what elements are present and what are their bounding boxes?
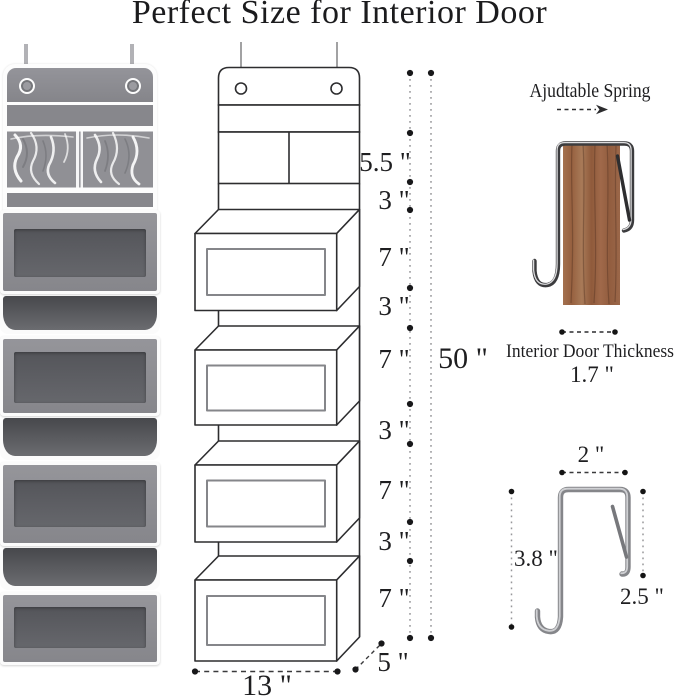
pocket-opening [0,548,160,590]
dim-label-section-3: 7 " [378,242,409,272]
pocket-window [14,480,146,527]
pocket-row [0,592,160,665]
dim-label-section-9: 7 " [378,583,409,613]
diagram-pocket [195,326,360,425]
fabric-band [7,193,153,207]
door-hook-panel: Ajudtable Spring Interior Door Thic [500,60,679,660]
pocket-opening [0,296,160,334]
door-thickness-label: Interior Door Thickness [506,341,674,362]
organizer-photo [0,0,164,697]
pocket-row [0,462,160,546]
pocket-window [14,607,146,648]
spring-label: Ajudtable Spring [530,80,651,102]
door-with-hook-illustration [534,143,632,335]
pocket-interior [3,548,157,586]
pocket-front [3,595,157,662]
dim-label-section-4: 3 " [378,291,409,321]
pocket-row [0,210,160,294]
measure-dots [407,70,434,641]
organizer-top-panel [3,64,157,211]
grommet-icon [236,83,247,94]
clear-pocket [7,129,153,190]
pocket-window [14,352,146,403]
dim-label-section-5: 7 " [378,344,409,374]
diagram-pocket [195,556,360,661]
pocket-interior [3,296,157,330]
hook-width-label: 2 " [578,442,605,467]
arrow-right-icon [557,105,608,114]
fabric-band [7,105,153,126]
grommet-icon [125,78,141,94]
pocket-row [0,336,160,416]
dim-label-section-1: 5.5 " [359,147,411,177]
diagram-pocket [195,441,360,542]
grommet-icon [331,83,342,94]
pocket-opening [0,418,160,460]
organizer-header [7,68,153,102]
pocket-front [3,339,157,413]
pocket-front [3,213,157,291]
dim-label-depth: 5 " [377,647,408,677]
product-dimension-infographic: Perfect Size for Interior Door [0,0,679,697]
diagram-pocket [195,210,360,311]
organizer-diagram: 5.5 " 3 " 7 " 3 " 7 " 3 " 7 " 3 " 7 " 50… [185,38,500,697]
dim-label-width: 13 " [242,669,292,697]
door-thickness-value: 1.7 " [570,362,614,387]
hook-dimension-diagram: 2 " 3.8 " 2.5 " [509,442,664,632]
hook-short-side-label: 2.5 " [620,584,664,609]
diagram-header [219,68,360,184]
dim-label-total-height: 50 " [438,342,488,375]
pocket-front [3,465,157,543]
hook-long-side-label: 3.8 " [514,546,558,571]
pocket-window [14,229,146,277]
dim-label-section-2: 3 " [378,185,409,215]
dim-label-section-7: 7 " [378,475,409,505]
dim-label-section-6: 3 " [378,415,409,445]
pocket-interior [3,418,157,456]
dim-label-section-8: 3 " [378,526,409,556]
clear-pocket-texture [7,129,153,190]
grommet-icon [19,78,35,94]
